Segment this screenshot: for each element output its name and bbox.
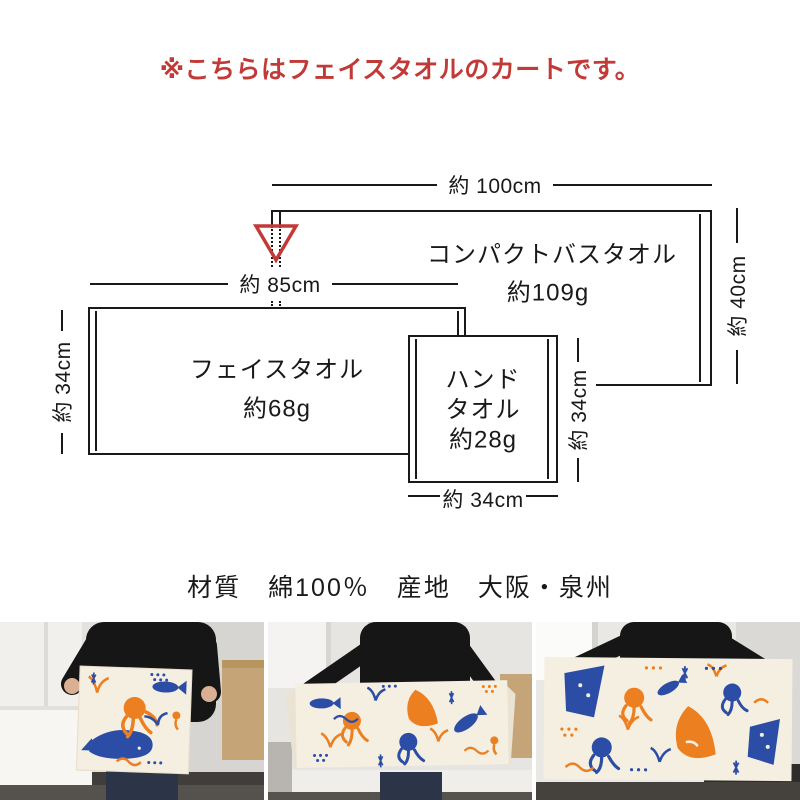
dim-label-34cm-bottom: 約 34cm <box>442 484 523 514</box>
compact-towel-name: コンパクトバスタオル <box>427 235 677 270</box>
photo-towel-folded-image <box>0 622 264 800</box>
photo-towel-closeup-image <box>536 622 800 800</box>
product-photo-strip <box>0 622 800 800</box>
hem-line <box>547 339 549 479</box>
dim-line-100cm-left <box>272 184 437 186</box>
dim-line-34cm-left-top <box>61 310 63 331</box>
hem-line <box>95 311 97 451</box>
dim-line-34cm-bottom-right <box>526 495 558 497</box>
dim-label-34cm-left: 約 34cm <box>47 341 77 422</box>
dim-line-34cm-hand-top <box>577 338 579 362</box>
dim-label-85cm: 約 85cm <box>233 268 326 300</box>
dim-line-100cm-right <box>553 184 712 186</box>
dim-line-85cm-left <box>90 283 228 285</box>
dim-line-85cm-right <box>332 283 458 285</box>
material-origin-text: 材質 綿100％ 産地 大阪・泉州 <box>0 568 800 604</box>
dim-label-100cm: 約 100cm <box>448 170 541 200</box>
dim-line-34cm-hand-bottom <box>577 458 579 482</box>
dim-line-34cm-bottom-left <box>408 495 440 497</box>
hem-line <box>699 214 701 382</box>
hand-towel-weight: 約28g <box>449 420 517 455</box>
dim-label-40cm-right: 約 40cm <box>722 255 752 336</box>
photo-towel-spread-image <box>268 622 532 800</box>
hem-line <box>415 339 417 479</box>
dim-line-40cm-bottom <box>736 350 738 384</box>
photo-towel-spread <box>268 622 532 800</box>
dim-label-34cm-hand-right: 約 34cm <box>563 369 593 450</box>
dim-line-34cm-left-bottom <box>61 433 63 454</box>
photo-towel-closeup <box>536 622 800 800</box>
photo-towel-folded <box>0 622 264 800</box>
red-triangle-marker-icon <box>250 218 302 264</box>
compact-towel-weight: 約109g <box>507 273 589 308</box>
dim-line-40cm-top <box>736 208 738 243</box>
face-towel-name: フェイスタオル <box>190 350 364 385</box>
notice-text: ※こちらはフェイスタオルのカートです。 <box>0 50 800 86</box>
product-info-image: ※こちらはフェイスタオルのカートです。 コンパクトバスタオル 約109g フェイ… <box>0 0 800 800</box>
face-towel-weight: 約68g <box>243 389 311 424</box>
